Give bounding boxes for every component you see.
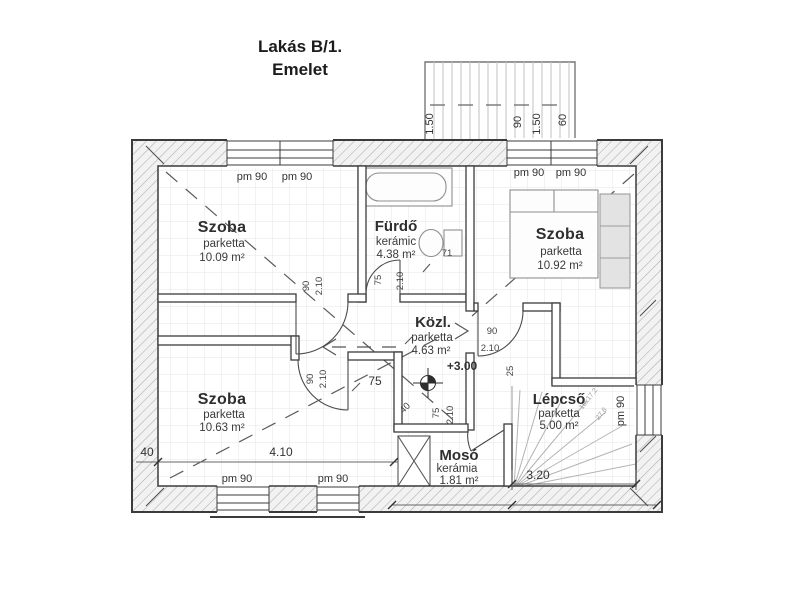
dim-stair-width: 3.20 (526, 468, 550, 482)
terrace: 1.50 90 1.50 60 (424, 62, 575, 140)
window-label: pm 90 (615, 396, 627, 427)
room-label-kozl: Közl. parketta 4.63 m² (411, 314, 453, 357)
room-finish: parketta (538, 408, 580, 420)
door-height: 2.10 (481, 343, 500, 354)
room-label-lepcso: Lépcső parketta 5.00 m² (533, 391, 586, 432)
window-stair (634, 385, 664, 435)
door-width: 75 (373, 275, 384, 286)
passage-width: 75 (368, 374, 382, 388)
window-label: pm 90 (514, 167, 545, 179)
room-name: Közl. (415, 314, 451, 331)
room-label-szoba-bl: Szoba parketta 10.63 m² (198, 391, 247, 434)
title-line2: Emelet (272, 60, 328, 79)
sheet-title: Lakás B/1. Emelet (258, 37, 342, 79)
room-finish: parketta (411, 332, 453, 344)
room-area: 4.63 m² (412, 345, 451, 357)
window-label: pm 90 (556, 167, 587, 179)
room-label-moso: Mosó kerámia 1.81 m² (437, 447, 479, 487)
window-bottom-2 (317, 484, 359, 514)
door-width: 90 (305, 374, 316, 385)
terrace-dim-150-left: 1.50 (424, 113, 436, 134)
door-height: 2.10 (445, 406, 456, 425)
window-bottom-1 (217, 484, 269, 514)
room-finish: parketta (540, 246, 582, 258)
window-top-right (507, 138, 597, 168)
pier-width: 25 (505, 366, 516, 377)
toilet-bowl (419, 230, 443, 257)
door-width-71: 71 (442, 248, 453, 259)
window-label: pm 90 (318, 473, 349, 485)
shaft-box (398, 436, 430, 486)
terrace-dim-150-right: 1.50 (531, 113, 543, 134)
door-width: 75 (431, 408, 442, 419)
room-finish: kerámic (376, 236, 417, 248)
room-name: Mosó (439, 447, 478, 464)
room-finish: parketta (203, 409, 245, 421)
room-label-szoba-tr: Szoba parketta 10.92 m² (536, 226, 585, 272)
room-area: 10.92 m² (537, 260, 583, 272)
room-area: 1.81 m² (440, 475, 479, 487)
room-name: Szoba (198, 219, 247, 236)
room-name: Lépcső (533, 391, 586, 408)
room-finish: parketta (203, 238, 245, 250)
room-name: Fürdő (375, 218, 418, 235)
window-label: pm 90 (237, 171, 268, 183)
room-area: 5.00 m² (540, 420, 579, 432)
room-name: Szoba (198, 391, 247, 408)
room-label-szoba-tl: Szoba parketta 10.09 m² (198, 219, 247, 264)
terrace-dim-60: 60 (557, 114, 569, 126)
window-label: pm 90 (222, 473, 253, 485)
room-name: Szoba (536, 226, 585, 243)
room-finish: kerámia (437, 463, 479, 475)
title-line1: Lakás B/1. (258, 37, 342, 56)
door-height: 2.10 (318, 370, 329, 389)
window-label: pm 90 (282, 171, 313, 183)
room-label-furdo: Fürdő kerámic 4.38 m² (375, 218, 418, 261)
door-width: 90 (487, 326, 498, 337)
floor-plan-drawing: Lakás B/1. Emelet 1.50 90 1.50 60 (0, 0, 800, 601)
door-width: 90 (301, 281, 312, 292)
dim-left-offset: 40 (140, 445, 154, 459)
door-height: 2.10 (314, 277, 325, 296)
level-value: +3.00 (447, 359, 478, 373)
wardrobe (600, 194, 630, 288)
room-area: 10.09 m² (199, 252, 245, 264)
room-area: 4.38 m² (377, 249, 416, 261)
dim-room-width: 4.10 (269, 445, 293, 459)
window-top-left (227, 138, 333, 168)
terrace-dim-90: 90 (512, 116, 524, 128)
door-height: 2.10 (395, 272, 406, 291)
floor-plan-sheet: Lakás B/1. Emelet 1.50 90 1.50 60 (0, 0, 800, 601)
room-area: 10.63 m² (199, 422, 245, 434)
